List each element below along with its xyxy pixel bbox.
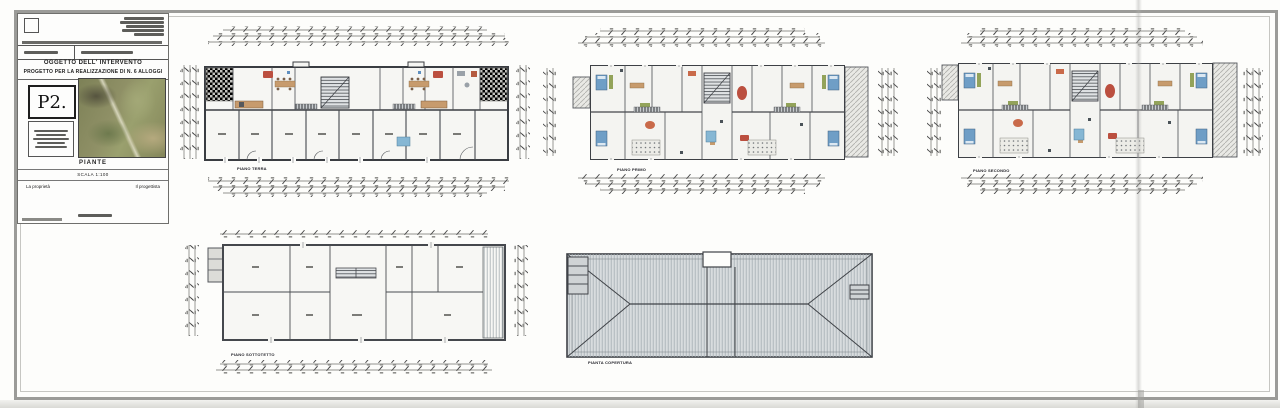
dimension-lines-top: [578, 27, 825, 47]
roof-body: [567, 252, 872, 357]
paper-fold-crease-foot: [1138, 390, 1144, 408]
paper-fold-crease: [1135, 0, 1142, 408]
title-block: OGGETTO DELL' INTERVENTO PROGETTO PER LA…: [17, 13, 169, 224]
terrace-hatch-right: [480, 68, 507, 101]
plan-pianta-copertura: [550, 240, 890, 372]
plan-label-piano-sottotetto: PIANO SOTTOTETTO: [231, 352, 275, 357]
building-second-floor: [958, 61, 1213, 160]
balcony-right: [1213, 63, 1237, 157]
building-ground-floor: [205, 62, 508, 163]
stair: [336, 268, 376, 278]
title-block-party-row: [18, 45, 168, 60]
dimension-lines-bottom: [578, 174, 825, 194]
scanned-drawing-sheet: OGGETTO DELL' INTERVENTO PROGETTO PER LA…: [0, 0, 1280, 408]
sheet-code: P2.: [28, 85, 76, 119]
balcony-left: [942, 65, 958, 100]
building-attic: [208, 242, 505, 343]
dimension-lines-bottom: [216, 360, 492, 374]
plan-piano-primo: [540, 28, 910, 203]
roof-notch: [703, 252, 731, 267]
dimension-lines-bottom: [208, 177, 509, 197]
terrace-hatch-left: [206, 68, 233, 101]
chimney-left: [568, 257, 588, 294]
right-terrace-band: [483, 247, 503, 338]
balcony-right: [845, 67, 868, 157]
title-block-microtext: [22, 41, 162, 44]
dimension-lines-right: [514, 245, 528, 336]
divider: [18, 169, 168, 170]
signature-right-label: Il progettista: [135, 184, 160, 189]
plan-label-piano-terra: PIANO TERRA: [237, 166, 267, 171]
dimension-lines-left: [543, 68, 557, 156]
dimension-lines-top: [220, 230, 488, 238]
project-title: PROGETTO PER LA REALIZZAZIONE DI N. 6 AL…: [18, 69, 168, 75]
dimension-lines-bottom: [961, 174, 1203, 194]
building-first-floor: [590, 63, 845, 162]
signature-left-label: La proprietà: [26, 184, 50, 189]
section-header: OGGETTO DELL' INTERVENTO: [18, 60, 168, 66]
title-block-stamp-text: [116, 17, 164, 36]
dimension-lines-right: [878, 68, 898, 156]
divider: [18, 180, 168, 181]
dimension-lines-right: [516, 65, 530, 159]
drawing-title: PIANTE: [18, 160, 168, 166]
dimension-lines-left: [185, 245, 199, 336]
designer-address-box: [28, 121, 74, 157]
plan-piano-terra: [175, 25, 535, 205]
aerial-site-photo: [78, 78, 166, 158]
dimension-lines-left: [927, 68, 941, 156]
balcony-left: [573, 77, 590, 108]
dimension-lines-top: [208, 26, 509, 46]
chimney-right: [850, 285, 869, 299]
stair: [321, 77, 349, 108]
plan-label-piano-secondo: PIANO SECONDO: [973, 168, 1010, 173]
plan-label-pianta-copertura: PIANTA COPERTURA: [588, 360, 632, 365]
dimension-lines-left: [180, 65, 200, 159]
dimension-lines-top: [961, 27, 1203, 47]
title-block-corner-box: [24, 18, 39, 33]
footnote-text: [22, 218, 62, 221]
scale-label: SCALA 1:100: [18, 172, 168, 177]
date-text: [78, 214, 112, 217]
dimension-lines-right: [1243, 68, 1263, 156]
plan-label-piano-primo: PIANO PRIMO: [617, 167, 646, 172]
plan-piano-secondo: [925, 28, 1275, 203]
scan-edge-strip: [0, 400, 1280, 408]
